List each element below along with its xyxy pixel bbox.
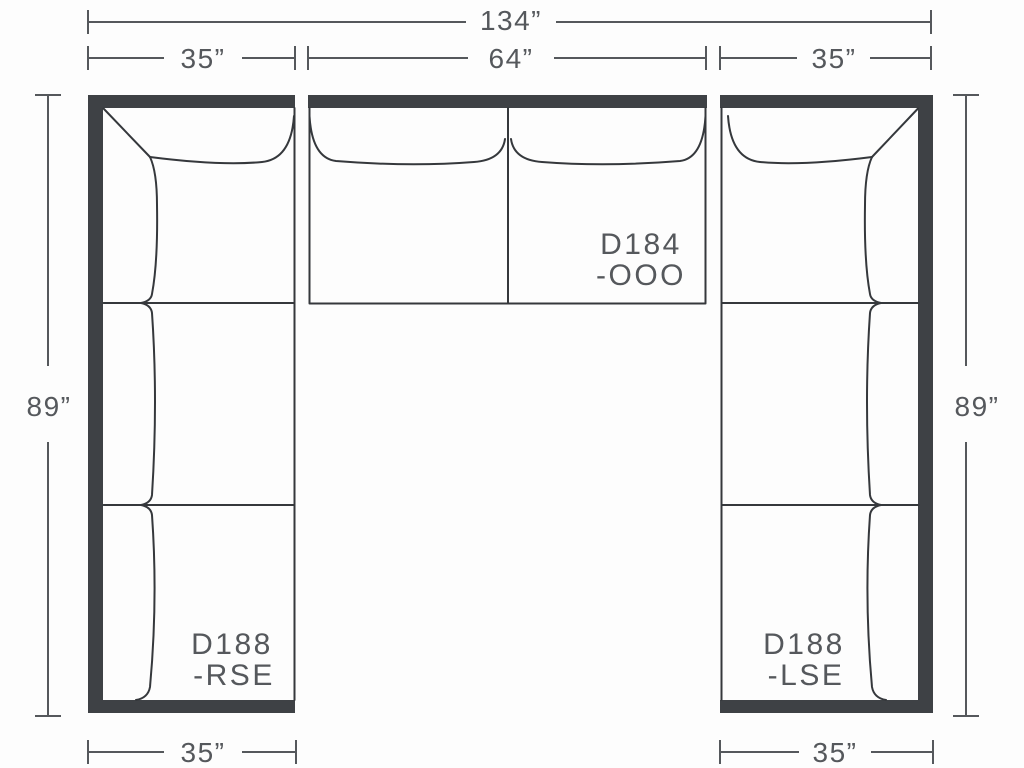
- left-unit-back-top: [88, 95, 295, 108]
- dim-bottom-left-label: 35”: [181, 737, 226, 768]
- dim-left-width-label: 35”: [181, 43, 226, 74]
- right-unit-model-label: D188: [763, 628, 845, 661]
- left-unit-arm-bottom: [88, 700, 295, 713]
- dim-total-width-label: 134”: [480, 5, 542, 36]
- dim-right-width-label: 35”: [812, 43, 857, 74]
- sectional-floorplan-diagram: 134” 35” 64” 35” 89” 89” 35” 35” D184 -O…: [0, 0, 1024, 768]
- left-unit-variant-label: -RSE: [193, 659, 275, 692]
- right-unit-arm-bottom: [720, 700, 933, 713]
- right-unit-variant-label: -LSE: [768, 659, 845, 692]
- right-unit-back-top: [720, 95, 933, 108]
- middle-unit-variant-label: -OOO: [596, 259, 686, 292]
- left-unit-back-wall: [88, 95, 103, 713]
- dim-bottom-right-label: 35”: [813, 737, 858, 768]
- middle-unit-model-label: D184: [600, 228, 682, 261]
- middle-unit-back-top: [308, 95, 707, 108]
- dim-left-height-label: 89”: [27, 391, 72, 422]
- dim-middle-width-label: 64”: [489, 43, 534, 74]
- left-unit-model-label: D188: [191, 628, 273, 661]
- right-unit-back-wall: [918, 95, 933, 713]
- dim-right-height-label: 89”: [955, 391, 1000, 422]
